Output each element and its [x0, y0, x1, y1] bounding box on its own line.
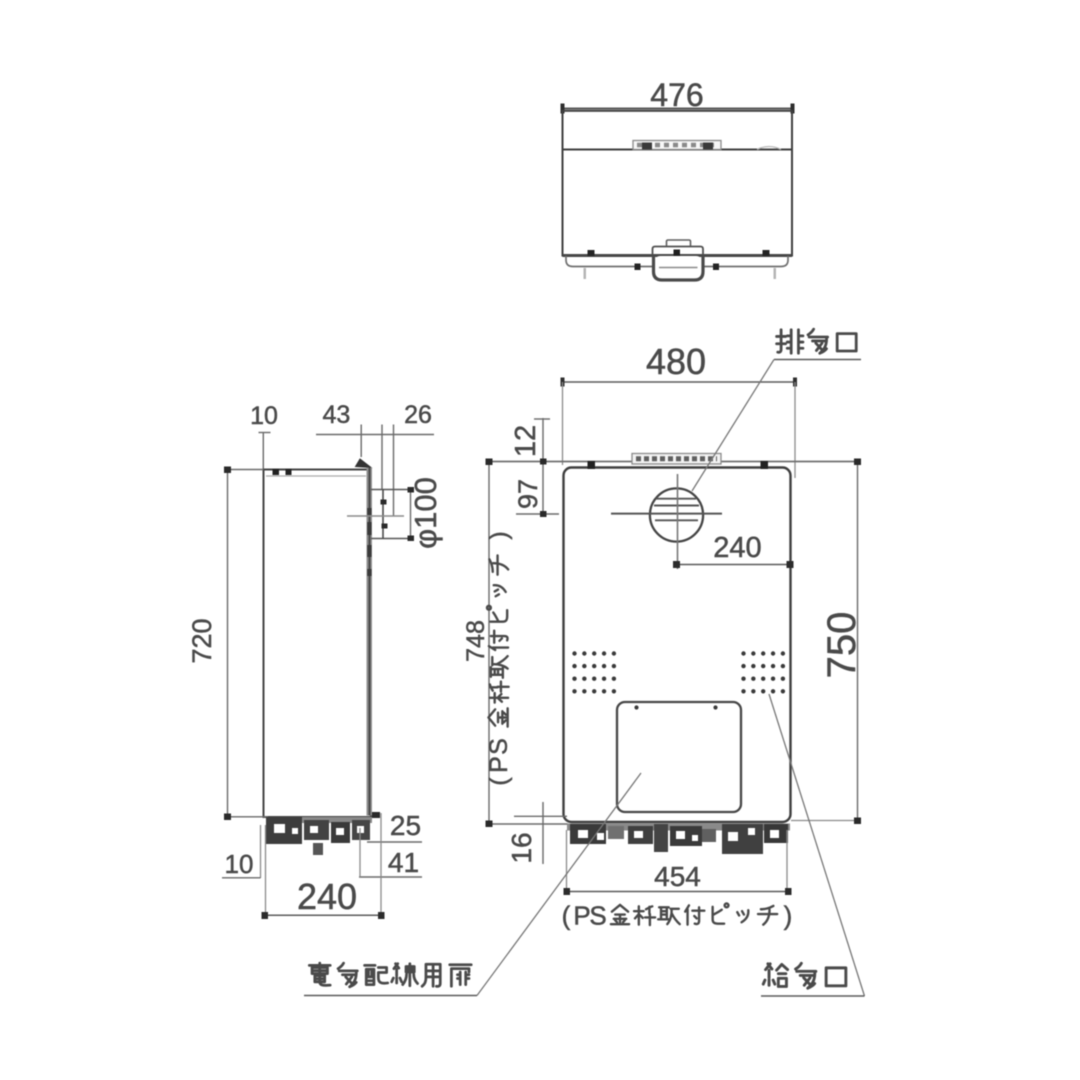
svg-text:240: 240 [297, 876, 357, 917]
svg-text:S: S [485, 738, 513, 755]
svg-text:(: ( [562, 901, 571, 931]
svg-text:φ100: φ100 [408, 477, 443, 549]
svg-text:12: 12 [510, 425, 542, 457]
svg-text:720: 720 [187, 618, 217, 663]
svg-text:750: 750 [820, 612, 864, 679]
svg-text:): ) [485, 531, 513, 539]
svg-text:P: P [485, 756, 513, 773]
svg-text:10: 10 [250, 402, 278, 430]
svg-text:748: 748 [462, 620, 490, 662]
svg-text:S: S [589, 901, 606, 931]
svg-text:10: 10 [225, 849, 254, 879]
svg-text:41: 41 [388, 847, 419, 878]
svg-text:P: P [573, 901, 590, 931]
svg-text:97: 97 [513, 479, 543, 509]
svg-text:16: 16 [506, 832, 537, 863]
svg-text:25: 25 [390, 810, 421, 841]
svg-text:26: 26 [404, 401, 432, 429]
svg-text:240: 240 [713, 532, 761, 564]
svg-text:480: 480 [646, 341, 706, 382]
svg-text:(: ( [485, 777, 513, 786]
svg-text:476: 476 [650, 77, 703, 113]
svg-text:454: 454 [654, 861, 701, 892]
svg-text:43: 43 [322, 401, 350, 429]
svg-text:): ) [784, 901, 793, 931]
